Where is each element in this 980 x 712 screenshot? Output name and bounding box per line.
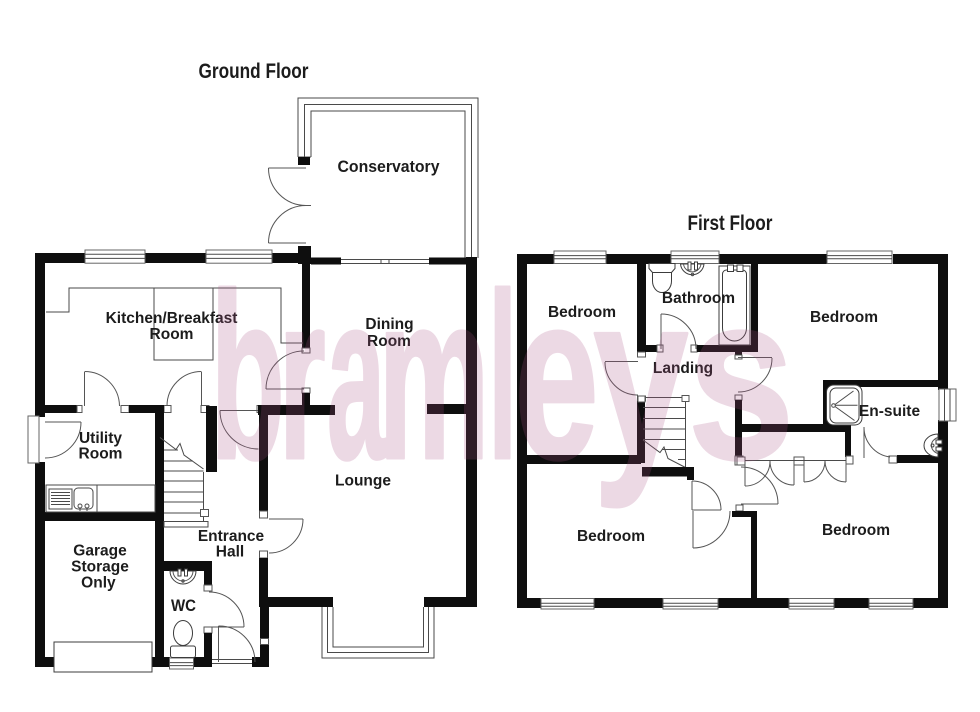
- svg-text:Bedroom: Bedroom: [810, 309, 878, 326]
- svg-text:Storage: Storage: [71, 558, 129, 575]
- svg-text:e: e: [514, 245, 598, 509]
- svg-text:a: a: [327, 245, 386, 509]
- svg-text:y: y: [593, 244, 688, 509]
- svg-text:b: b: [210, 244, 285, 508]
- svg-text:Entrance: Entrance: [198, 528, 265, 545]
- svg-text:Garage: Garage: [73, 543, 127, 560]
- svg-text:Room: Room: [150, 326, 194, 343]
- svg-text:r: r: [278, 244, 325, 508]
- svg-text:Utility: Utility: [79, 430, 122, 447]
- svg-text:Ground Floor: Ground Floor: [199, 60, 309, 83]
- svg-text:Conservatory: Conservatory: [338, 158, 441, 176]
- svg-text:Only: Only: [81, 575, 116, 592]
- svg-text:Room: Room: [79, 446, 123, 463]
- svg-text:WC: WC: [171, 596, 196, 615]
- svg-text:Bedroom: Bedroom: [822, 522, 890, 539]
- svg-text:Hall: Hall: [216, 544, 244, 561]
- svg-text:Bedroom: Bedroom: [577, 528, 645, 545]
- svg-text:m: m: [378, 246, 489, 510]
- svg-text:En-suite: En-suite: [859, 403, 921, 420]
- svg-text:s: s: [688, 244, 795, 508]
- svg-text:First Floor: First Floor: [688, 212, 773, 235]
- svg-text:l: l: [488, 244, 518, 508]
